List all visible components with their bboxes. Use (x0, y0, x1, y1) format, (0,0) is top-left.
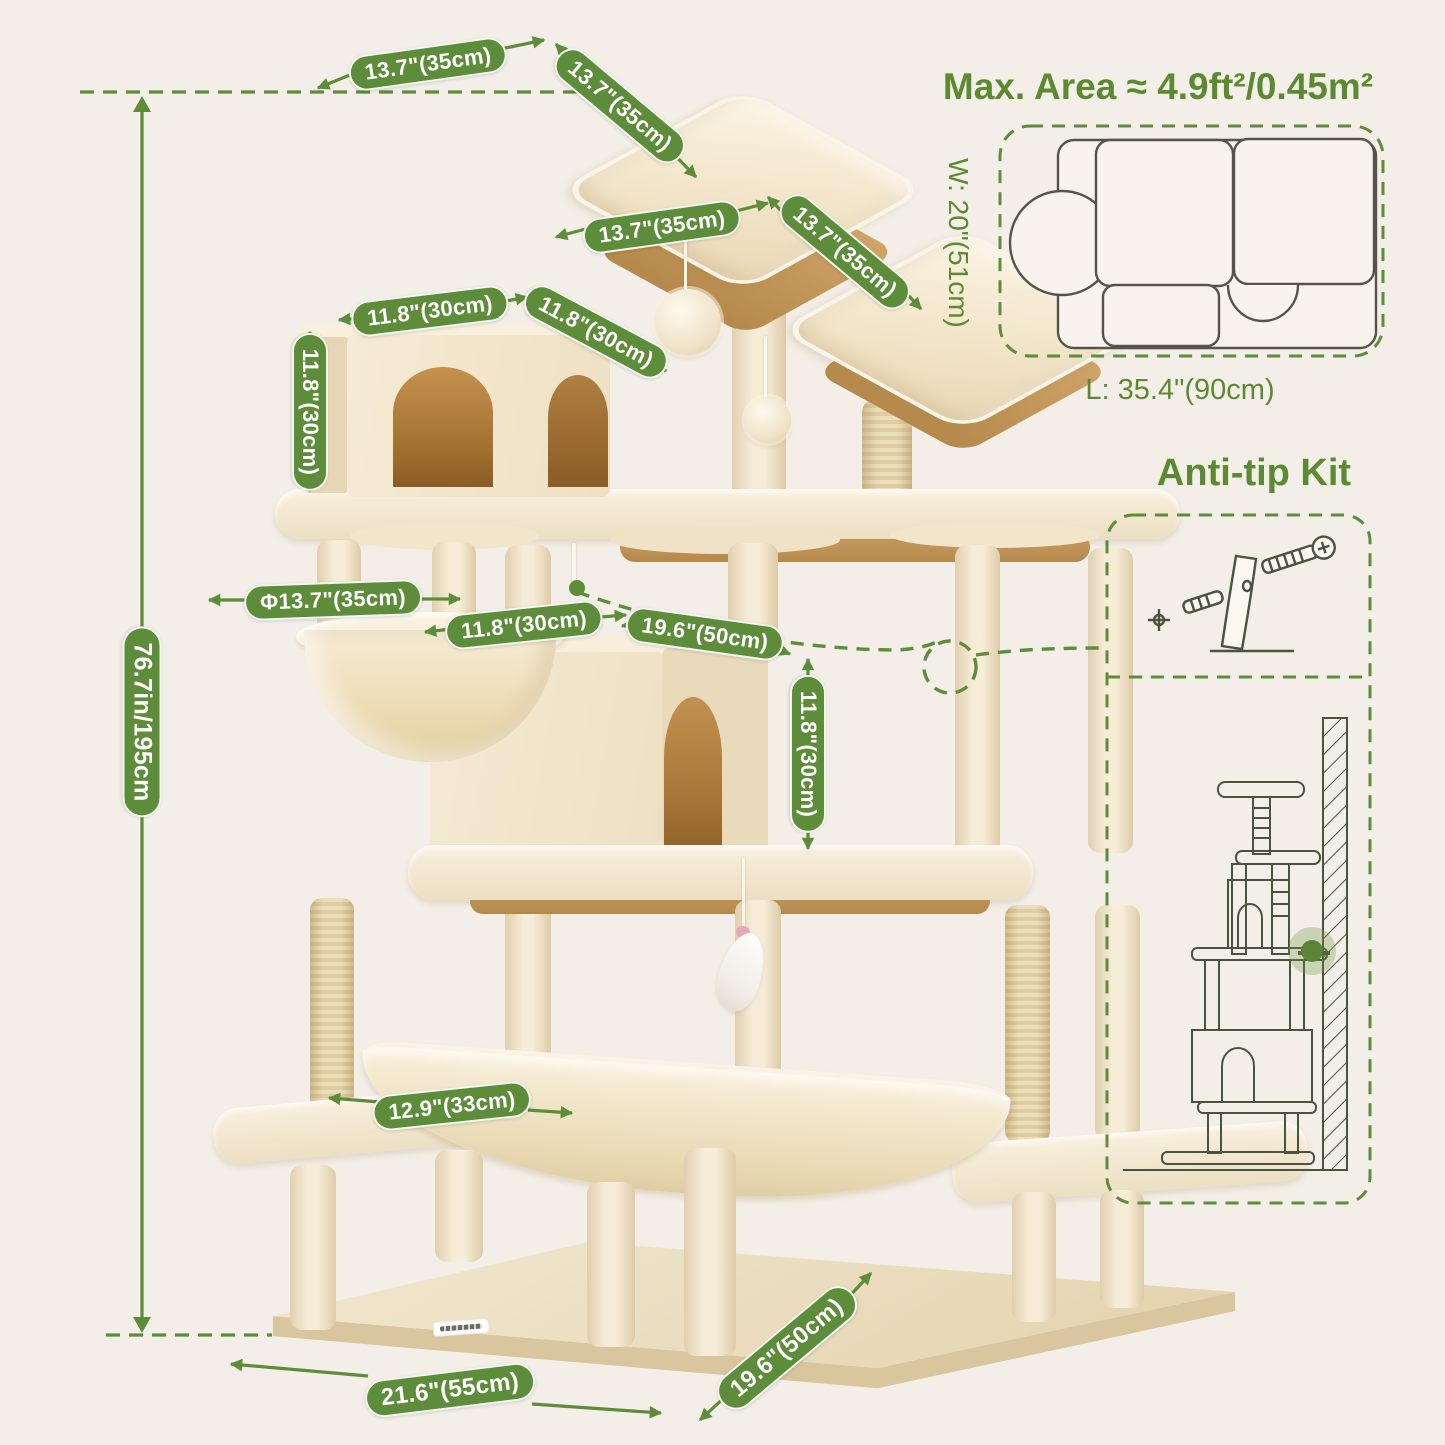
product-dimension-infographic: 13.7"(35cm) 13.7"(35cm) 13.7"(35cm) 13.7… (0, 0, 1445, 1445)
dim-big-condo-height: 11.8"(30cm) (790, 675, 826, 833)
dim-top-condo-height: 11.8"(30cm) (292, 333, 328, 491)
brand-label-text-blur (440, 1324, 482, 1332)
max-area-width-label: W: 20"(51cm) (942, 158, 974, 328)
pompom-toy-2 (745, 397, 791, 443)
scratching-post (310, 898, 354, 1126)
max-area-length-label: L: 35.4"(90cm) (1050, 374, 1310, 407)
pompom-string-2 (764, 336, 767, 400)
base-post (684, 1148, 736, 1356)
condo-platform (408, 845, 1033, 900)
base-post (1012, 1192, 1056, 1322)
anti-tip-title: Anti-tip Kit (1104, 452, 1404, 495)
scratching-post (1005, 905, 1050, 1143)
wavy-platform-edge (890, 522, 1100, 548)
dim-basket-diameter: Φ13.7"(35cm) (244, 579, 423, 621)
hanging-cord (572, 543, 576, 587)
max-area-title: Max. Area ≈ 4.9ft²/0.45m² (926, 66, 1390, 108)
base-post (587, 1182, 635, 1347)
toy-string (742, 858, 745, 934)
top-condo-door-left (393, 367, 493, 487)
right-post (1088, 548, 1133, 853)
wavy-platform-edge (610, 526, 840, 554)
top-condo-door-right (548, 375, 608, 487)
base-post (1100, 1190, 1144, 1308)
big-condo-door (664, 697, 722, 857)
base-post (435, 1150, 483, 1262)
dim-total-height: 76.7in/195cm (123, 626, 162, 817)
base-post (290, 1165, 336, 1330)
support-post (1095, 905, 1140, 1140)
pompom-toy (655, 289, 721, 355)
right-post (955, 545, 1000, 855)
